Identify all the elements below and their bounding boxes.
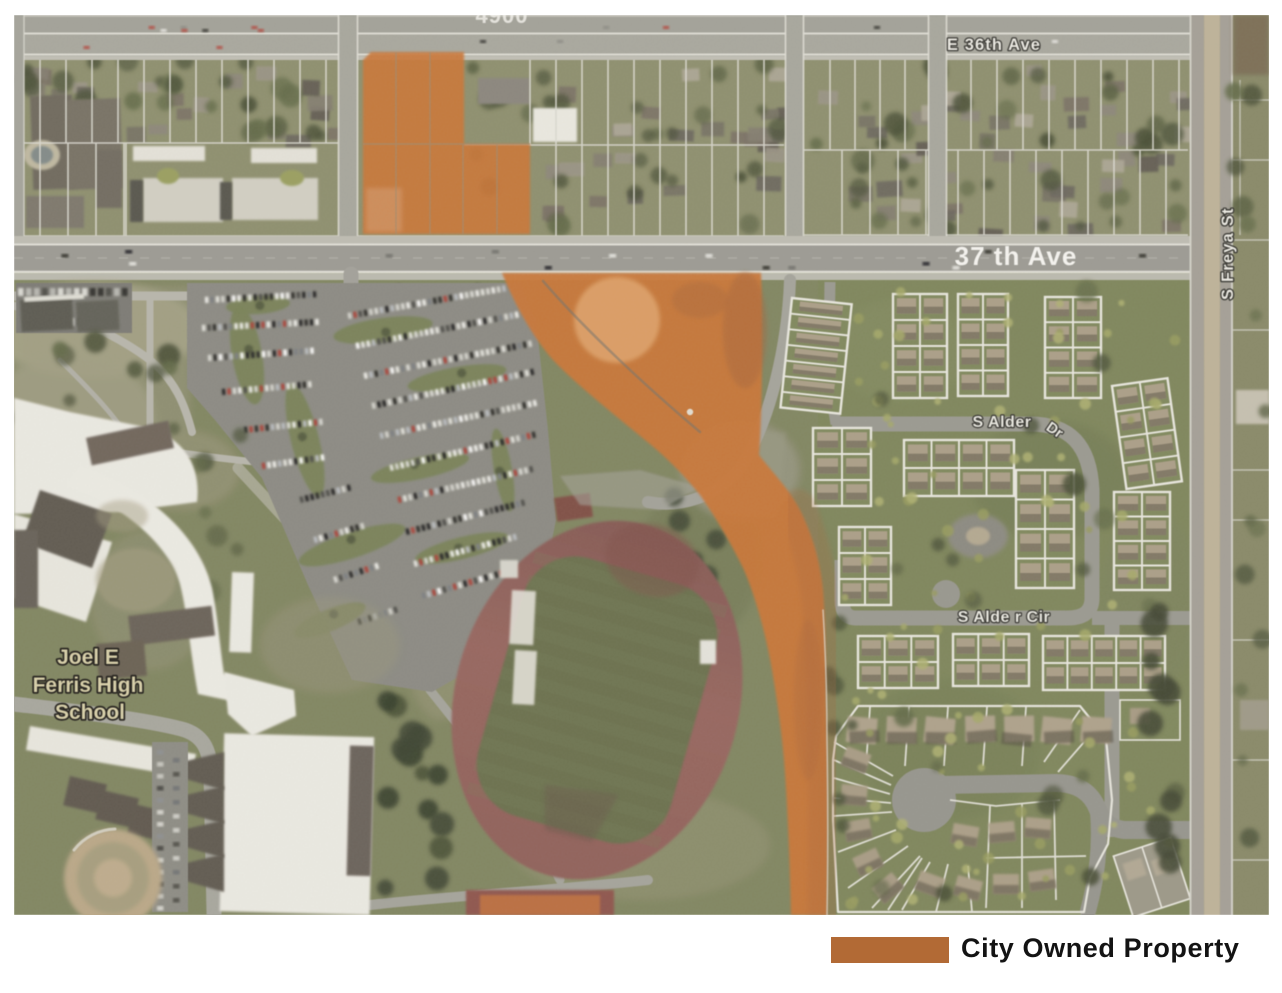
svg-text:City Owned Property: City Owned Property	[961, 933, 1239, 963]
